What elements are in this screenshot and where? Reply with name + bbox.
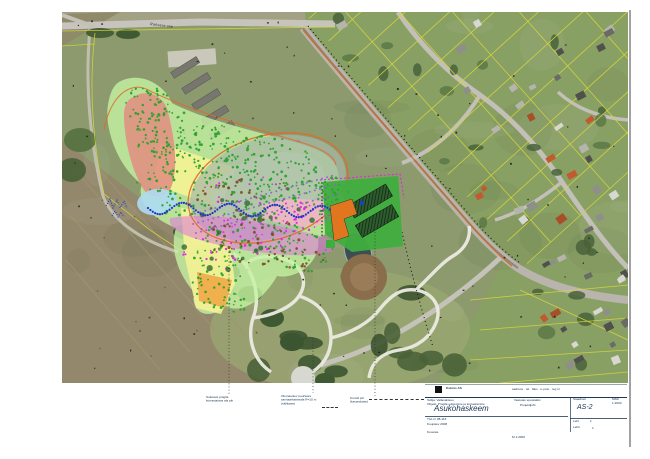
dot — [247, 240, 250, 243]
purple-dot — [309, 191, 311, 193]
dot — [134, 112, 137, 115]
blue-dot — [223, 204, 225, 206]
dot — [244, 162, 246, 164]
dot — [239, 309, 241, 311]
dot — [137, 113, 140, 116]
dot — [304, 150, 306, 152]
dot — [223, 182, 226, 185]
purple-dot — [225, 224, 227, 226]
dot — [273, 226, 275, 228]
speck — [366, 155, 367, 157]
mid-line-1: Vastutav spetsialist — [514, 399, 540, 403]
speck — [338, 65, 340, 66]
dot — [149, 188, 151, 190]
speck — [150, 355, 151, 356]
dot — [176, 144, 179, 147]
dot — [307, 172, 310, 175]
dot — [232, 141, 234, 143]
dot — [284, 175, 287, 178]
dot — [135, 88, 137, 90]
speck — [335, 135, 336, 137]
tree-blob — [577, 312, 594, 326]
dot — [210, 145, 212, 147]
blue-dot — [178, 202, 180, 204]
dot — [313, 203, 315, 205]
blue-dot — [267, 206, 269, 208]
dot — [150, 93, 152, 95]
dot — [197, 250, 199, 252]
purple-dot — [248, 208, 250, 210]
dot — [234, 224, 236, 226]
dot — [231, 248, 233, 250]
dot — [193, 181, 196, 184]
dot — [267, 260, 269, 262]
dot — [162, 169, 164, 171]
speck — [86, 136, 88, 137]
dot — [222, 231, 224, 233]
dot — [304, 265, 306, 267]
speck — [596, 252, 598, 253]
dot — [203, 158, 205, 160]
dot — [237, 259, 239, 261]
speck — [333, 293, 335, 294]
dot — [155, 179, 158, 182]
dot — [166, 202, 168, 204]
dot — [212, 161, 214, 163]
dot — [293, 240, 295, 242]
dot — [288, 266, 290, 268]
dot — [325, 249, 327, 251]
dot — [177, 131, 179, 133]
texture-blob — [610, 200, 638, 212]
scale-value: 1:2000 — [612, 402, 622, 406]
speck — [449, 188, 451, 189]
sheets-value: 1 — [592, 427, 594, 431]
dot — [249, 222, 251, 224]
purple-dot — [296, 185, 298, 187]
dot — [178, 137, 180, 139]
dot — [236, 229, 239, 232]
dot — [171, 112, 173, 114]
tree-blob — [397, 352, 428, 372]
dot — [201, 127, 203, 129]
dot — [275, 183, 277, 185]
purple-dot — [204, 210, 206, 212]
speck — [463, 290, 465, 291]
dot — [225, 248, 227, 250]
dot — [244, 239, 247, 242]
blue-dot — [173, 205, 175, 207]
titleblock-top-rule — [425, 384, 627, 385]
dot — [223, 220, 225, 222]
dot — [200, 278, 202, 280]
dot — [265, 201, 267, 203]
dot — [240, 223, 243, 226]
blue-dot — [226, 203, 228, 205]
speck — [252, 118, 253, 120]
dot — [285, 215, 287, 217]
purple-dot — [265, 193, 267, 195]
dot — [227, 150, 229, 152]
dot — [196, 293, 198, 295]
dot — [311, 234, 313, 236]
dot — [236, 181, 239, 184]
tree-blob — [584, 234, 595, 248]
purple-dot — [195, 232, 197, 234]
dot — [254, 176, 256, 178]
dot — [256, 237, 259, 240]
dot — [233, 248, 235, 250]
dot — [222, 185, 225, 188]
purple-dot — [331, 175, 333, 177]
dot — [193, 257, 196, 260]
dot — [210, 250, 212, 252]
dot — [256, 137, 258, 139]
dot — [244, 171, 246, 173]
annotation-2-line-3: (säilitatav) — [281, 402, 316, 406]
dot — [273, 247, 275, 249]
dot — [156, 139, 158, 141]
dot — [168, 196, 170, 198]
blue-dot — [209, 213, 211, 215]
dot — [294, 224, 297, 227]
dot — [223, 235, 226, 238]
company-info: aadress · tel · faks · e-post · reg nr — [512, 388, 560, 392]
dot — [321, 193, 323, 195]
purple-dot — [202, 220, 204, 222]
speck — [472, 286, 473, 287]
dot — [306, 192, 308, 194]
dot — [247, 145, 249, 147]
dot — [156, 98, 158, 100]
dot — [251, 154, 253, 156]
dot — [230, 194, 232, 196]
purple-dot — [250, 197, 252, 199]
dot — [308, 259, 310, 261]
dot — [234, 216, 236, 218]
dot — [220, 157, 222, 159]
dot — [211, 222, 213, 224]
dot — [166, 141, 169, 144]
dot — [236, 166, 239, 169]
speck — [102, 200, 103, 201]
blue-dot — [154, 212, 156, 214]
dot — [156, 88, 158, 90]
dot — [202, 125, 204, 127]
dot — [193, 158, 195, 160]
blue-dot — [305, 213, 307, 215]
dot — [165, 151, 167, 153]
dot — [162, 93, 164, 95]
dot — [139, 129, 141, 131]
speck — [94, 368, 95, 369]
dot — [138, 144, 140, 146]
dot — [285, 266, 288, 269]
purple-dot — [329, 185, 331, 187]
purple-dot — [297, 204, 299, 206]
dot — [272, 171, 275, 174]
dot — [268, 186, 270, 188]
purple-dot — [302, 203, 304, 205]
dot — [180, 131, 182, 133]
sheets-label: Lehti — [573, 426, 580, 430]
titleblock-rule-3 — [570, 418, 627, 419]
dot — [261, 234, 262, 235]
purple-dot — [231, 222, 233, 224]
dot — [183, 251, 185, 253]
author-line: Koostas — [427, 431, 438, 435]
dot — [225, 260, 227, 262]
dot — [302, 163, 304, 165]
dot — [275, 217, 277, 219]
sheet-value: 1 — [590, 420, 592, 424]
dot — [276, 173, 278, 175]
dot — [234, 300, 236, 302]
speck — [99, 348, 100, 349]
blue-dot — [180, 202, 182, 204]
dot — [169, 204, 171, 206]
speck — [278, 22, 279, 24]
dot — [269, 245, 271, 247]
dot — [143, 128, 146, 131]
dot — [157, 94, 159, 96]
dot — [226, 137, 228, 139]
dot — [319, 210, 321, 212]
blue-dot — [183, 202, 185, 204]
dot — [208, 229, 210, 231]
dot — [258, 245, 263, 250]
speck — [149, 317, 150, 318]
dot — [139, 121, 141, 123]
dot — [296, 182, 298, 184]
dot — [195, 148, 197, 150]
speck — [583, 262, 584, 264]
speck — [250, 81, 252, 82]
dot — [205, 258, 207, 260]
blue-dot — [274, 204, 276, 206]
dot — [278, 222, 280, 224]
dot — [271, 183, 273, 185]
dot — [217, 167, 219, 169]
speck — [343, 356, 344, 357]
dot — [201, 200, 203, 202]
dot — [223, 160, 225, 162]
dot — [331, 189, 333, 191]
purple-dot — [337, 193, 339, 195]
purple-dot — [314, 189, 316, 191]
speck — [613, 146, 614, 147]
dot — [222, 241, 224, 243]
dot — [227, 219, 229, 221]
purple-dot — [291, 186, 293, 188]
dot — [257, 173, 259, 175]
dot — [211, 251, 213, 253]
sheet-label: Leht — [573, 420, 579, 424]
dot — [239, 213, 242, 216]
dot — [257, 242, 260, 245]
dot — [259, 185, 261, 187]
speck — [469, 363, 471, 364]
dot — [308, 162, 310, 164]
annotation-1-line-2: korrastatava ala piir — [206, 400, 233, 404]
blue-dot — [219, 207, 221, 209]
purple-dot — [228, 213, 230, 215]
dot — [171, 198, 174, 201]
purple-dot — [316, 179, 318, 181]
dot — [273, 224, 275, 226]
blue-dot — [262, 210, 264, 212]
dot — [241, 240, 244, 243]
dot — [169, 111, 171, 113]
dot — [267, 184, 269, 186]
dot — [193, 189, 195, 191]
purple-dot — [217, 216, 219, 218]
speck — [348, 65, 349, 67]
blue-dot — [290, 214, 292, 216]
dot — [170, 173, 173, 176]
dot — [183, 112, 186, 115]
dot — [261, 223, 263, 225]
speck — [527, 199, 528, 200]
dot — [161, 204, 163, 206]
purple-dot — [236, 221, 238, 223]
dot — [289, 249, 291, 251]
purple-dot — [301, 183, 303, 185]
purple-dot — [212, 217, 214, 219]
purple-dot — [324, 187, 326, 189]
speck — [224, 53, 225, 54]
scale-note: M 1:2000 — [512, 436, 525, 440]
purple-dot — [278, 199, 280, 201]
dot — [281, 144, 284, 147]
dot — [255, 183, 257, 185]
dot — [305, 262, 307, 264]
speck — [78, 25, 79, 26]
facility-green-square — [326, 240, 335, 248]
dot — [254, 248, 259, 253]
purple-dot — [327, 196, 329, 198]
dot — [233, 293, 235, 295]
dot — [306, 152, 308, 154]
dot — [167, 104, 169, 106]
purple-dot — [334, 184, 336, 186]
dot — [247, 158, 249, 160]
purple-dot — [246, 218, 248, 220]
speck — [415, 93, 417, 95]
dot — [222, 305, 224, 307]
blue-dot — [149, 209, 151, 211]
dot — [213, 306, 215, 308]
dot — [154, 176, 156, 178]
blue-dot — [283, 208, 285, 210]
tree-blob — [550, 34, 558, 49]
speck — [378, 352, 380, 353]
speck — [287, 46, 288, 47]
dot — [335, 177, 338, 180]
dot — [243, 169, 245, 171]
dot — [179, 197, 181, 199]
dot — [155, 134, 158, 137]
blue-dot — [329, 208, 331, 210]
dot — [169, 192, 172, 195]
dot — [314, 170, 317, 173]
dot — [334, 192, 336, 194]
dot — [157, 119, 160, 122]
dot — [285, 203, 287, 205]
purple-dot — [238, 210, 240, 212]
dot — [194, 144, 196, 146]
blue-dot — [238, 208, 240, 210]
blue-dot — [240, 210, 242, 212]
annotation-3-line-2: (kavandatav) — [350, 401, 368, 405]
purple-dot — [275, 190, 277, 192]
speck — [183, 317, 184, 319]
speck — [455, 132, 457, 134]
dot — [281, 261, 283, 263]
purple-dot — [243, 209, 245, 211]
dot — [239, 172, 241, 174]
dot — [215, 259, 217, 261]
dot — [261, 226, 264, 229]
dot — [152, 130, 154, 132]
dot — [227, 200, 229, 202]
dot — [226, 302, 228, 304]
dot — [264, 263, 266, 265]
dot — [184, 253, 186, 255]
purple-dot — [312, 200, 314, 202]
dot — [283, 220, 284, 221]
dot — [148, 118, 150, 120]
speck — [104, 237, 105, 238]
dot — [228, 246, 231, 249]
dot — [174, 161, 176, 163]
dot — [216, 240, 218, 242]
dot — [192, 281, 194, 283]
dot — [232, 232, 234, 234]
dot — [156, 93, 158, 95]
dot — [319, 213, 321, 215]
blue-dot — [252, 215, 254, 217]
dot — [243, 308, 246, 311]
speck — [73, 85, 74, 87]
dot — [235, 293, 237, 295]
dot — [254, 161, 256, 163]
dot — [218, 248, 220, 250]
dot — [259, 202, 261, 204]
blue-dot — [192, 207, 194, 209]
speck — [212, 43, 214, 45]
dot — [347, 191, 349, 193]
dot — [280, 211, 282, 213]
purple-dot — [233, 212, 235, 214]
dot — [220, 245, 223, 248]
dot — [202, 167, 204, 169]
blue-dot — [185, 202, 187, 204]
dot — [294, 200, 297, 203]
dot — [197, 252, 199, 254]
dot — [231, 159, 233, 161]
tree-blob — [551, 169, 562, 176]
dot — [254, 227, 256, 229]
dot — [214, 248, 216, 250]
dot — [272, 148, 274, 150]
dot — [324, 194, 326, 196]
blue-dot — [276, 204, 278, 206]
dot — [207, 279, 209, 281]
dot — [209, 177, 212, 180]
dot — [169, 151, 172, 154]
dot — [260, 155, 263, 158]
